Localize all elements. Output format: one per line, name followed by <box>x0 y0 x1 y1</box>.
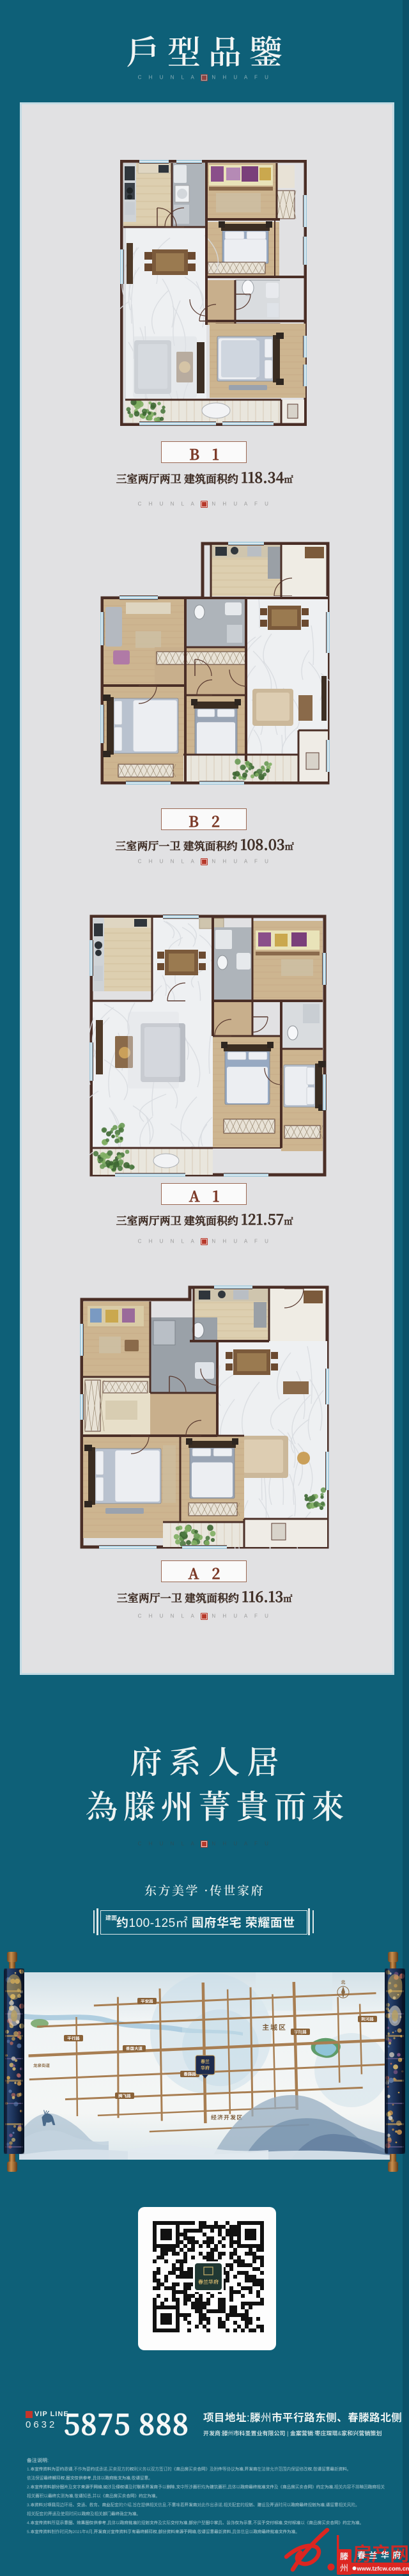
svg-text:春兰华府: 春兰华府 <box>198 2279 219 2286</box>
svg-text:平安路: 平安路 <box>141 1998 153 2004</box>
svg-text:荆河路: 荆河路 <box>361 2016 374 2022</box>
svg-text:龙泉街道: 龙泉街道 <box>33 2062 50 2068</box>
svg-text:www.tzfcw.com.cn: www.tzfcw.com.cn <box>357 2566 409 2572</box>
svg-text:学院路: 学院路 <box>294 2029 307 2035</box>
svg-text:主城区: 主城区 <box>262 2022 287 2032</box>
svg-text:春兰: 春兰 <box>201 2059 210 2065</box>
svg-text:腾飞路: 腾飞路 <box>118 2093 131 2099</box>
svg-text:平行路: 平行路 <box>67 2035 80 2041</box>
svg-text:经济开发区: 经济开发区 <box>211 2113 243 2121</box>
svg-text:春藤路: 春藤路 <box>183 2071 196 2077</box>
svg-text:善国大道: 善国大道 <box>126 2045 143 2052</box>
svg-text:滕: 滕 <box>340 2550 348 2562</box>
svg-text:春兰华府: 春兰华府 <box>357 2549 405 2561</box>
svg-text:北: 北 <box>341 1979 346 1986</box>
svg-text:华府: 华府 <box>201 2065 210 2071</box>
svg-text:州: 州 <box>340 2561 348 2573</box>
